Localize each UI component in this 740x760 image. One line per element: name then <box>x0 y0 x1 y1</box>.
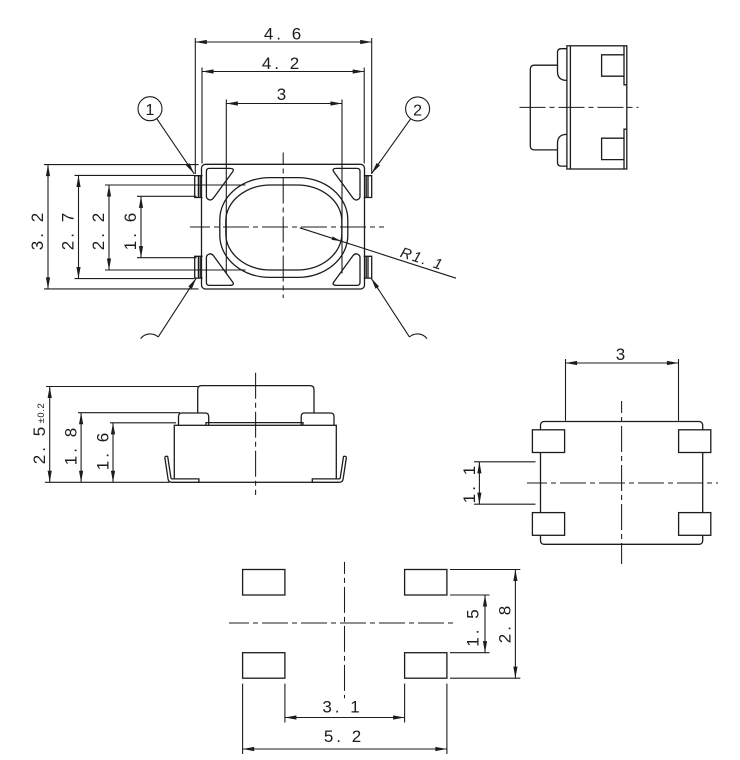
svg-text:R1. 1: R1. 1 <box>398 244 446 274</box>
svg-text:3. 2: 3. 2 <box>28 210 47 250</box>
svg-text:1. 8: 1. 8 <box>62 425 81 465</box>
svg-text:±0.2: ±0.2 <box>36 403 47 424</box>
svg-text:1. 6: 1. 6 <box>121 210 140 250</box>
svg-text:5. 2: 5. 2 <box>324 727 364 746</box>
svg-text:1. 1: 1. 1 <box>460 463 479 503</box>
svg-text:1. 6: 1. 6 <box>94 430 113 470</box>
svg-text:2: 2 <box>413 102 422 119</box>
svg-text:2. 2: 2. 2 <box>89 210 108 250</box>
svg-text:3: 3 <box>277 85 289 104</box>
svg-text:2. 8: 2. 8 <box>496 603 515 643</box>
svg-text:4. 6: 4. 6 <box>264 24 304 43</box>
svg-text:1. 5: 1. 5 <box>464 606 483 646</box>
svg-text:2. 7: 2. 7 <box>59 210 78 250</box>
svg-text:1: 1 <box>146 102 155 119</box>
svg-text:2. 5: 2. 5 <box>30 424 49 464</box>
svg-text:3: 3 <box>616 345 628 364</box>
svg-text:3. 1: 3. 1 <box>322 698 362 717</box>
svg-text:4. 2: 4. 2 <box>262 54 302 73</box>
